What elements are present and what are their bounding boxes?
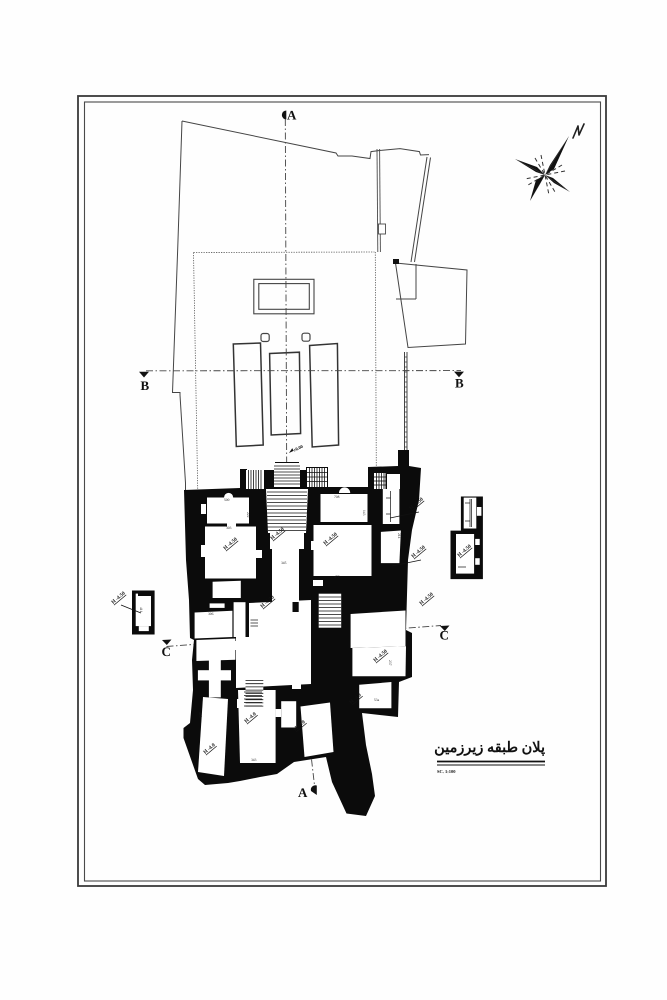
- svg-text:343: 343: [251, 758, 257, 762]
- svg-text:53a: 53a: [374, 698, 380, 702]
- svg-text:477: 477: [334, 575, 340, 579]
- svg-text:306: 306: [208, 612, 214, 616]
- svg-text:C: C: [162, 644, 171, 659]
- svg-text:A: A: [287, 108, 297, 123]
- svg-text:B: B: [455, 376, 464, 391]
- svg-text:425: 425: [198, 712, 202, 718]
- svg-text:303: 303: [226, 526, 232, 530]
- svg-text:پلان طبقه زیرزمین: پلان طبقه زیرزمین: [434, 740, 545, 756]
- svg-text:708: 708: [334, 495, 340, 499]
- svg-text:SC. 1:100: SC. 1:100: [437, 769, 456, 774]
- svg-text:B: B: [141, 378, 150, 393]
- svg-text:345: 345: [281, 561, 287, 565]
- svg-text:500: 500: [224, 498, 230, 502]
- svg-text:A: A: [298, 785, 308, 800]
- svg-text:C: C: [440, 628, 449, 643]
- svg-text:214: 214: [397, 533, 401, 539]
- svg-text:411: 411: [139, 607, 143, 612]
- svg-text:237: 237: [388, 660, 392, 666]
- svg-text:143: 143: [362, 510, 366, 516]
- svg-text:222: 222: [246, 512, 250, 518]
